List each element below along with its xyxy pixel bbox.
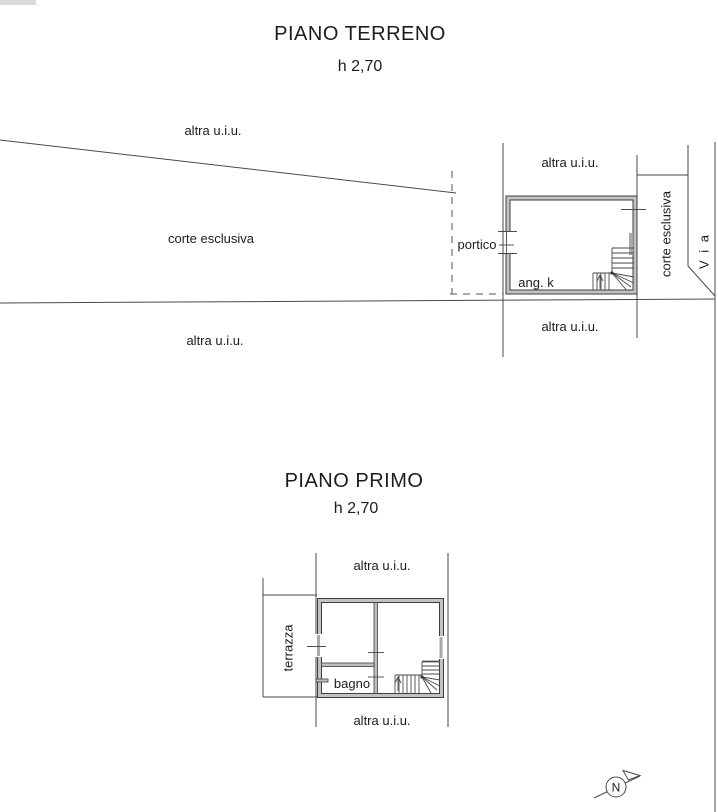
boundary-line-sloping <box>0 140 456 193</box>
room-ang-k: ang. k <box>498 196 646 294</box>
label-altra-uiu-bottom-left: altra u.i.u. <box>186 333 243 348</box>
label-altra-uiu-bottom-right: altra u.i.u. <box>541 319 598 334</box>
label-portico: portico <box>457 237 496 252</box>
scan-smudge <box>0 0 36 5</box>
first-floor-height-note: h 2,70 <box>334 500 379 517</box>
bagno-wall-top <box>322 663 375 667</box>
ground-floor-title: PIANO TERRENO <box>274 23 446 45</box>
label-corte-esclusiva-left: corte esclusiva <box>168 231 255 246</box>
ff-partition-vertical <box>374 603 378 694</box>
first-floor-title: PIANO PRIMO <box>285 470 424 492</box>
ff-left-window <box>317 635 320 656</box>
ff-right-window <box>440 637 443 658</box>
label-bagno: bagno <box>334 676 370 691</box>
label-ff-altra-uiu-top: altra u.i.u. <box>353 558 410 573</box>
label-via: V i a <box>697 233 712 269</box>
label-altra-uiu-top-right: altra u.i.u. <box>541 155 598 170</box>
first-floor-plan: PIANO PRIMO h 2,70 altra u.i.u. altra u.… <box>263 470 448 728</box>
floor-plan-drawing: PIANO TERRENO h 2,70 altra u.i.u. corte … <box>0 0 718 812</box>
label-corte-esclusiva-right: corte esclusiva <box>659 190 674 277</box>
first-floor-unit: bagno <box>307 599 445 698</box>
north-label: N <box>612 781 621 795</box>
north-arrow-head <box>623 771 640 781</box>
bagno-wall-stub <box>316 679 328 682</box>
door-opening-gap <box>504 232 512 253</box>
label-altra-uiu-top-left: altra u.i.u. <box>184 123 241 138</box>
street-diagonal-line <box>688 266 715 296</box>
floor-plan-page: PIANO TERRENO h 2,70 altra u.i.u. corte … <box>0 0 718 812</box>
label-ang-k: ang. k <box>518 275 554 290</box>
terrace: terrazza <box>263 578 318 697</box>
label-terrazza: terrazza <box>281 624 296 672</box>
label-ff-altra-uiu-bottom: altra u.i.u. <box>353 713 410 728</box>
stairs-ground-floor <box>593 248 634 290</box>
stairs-first-floor <box>395 662 440 694</box>
ff-stair-pivot-dot <box>420 675 423 678</box>
stair-pivot-dot <box>610 271 613 274</box>
north-arrow: N <box>594 771 640 799</box>
ground-floor-height-note: h 2,70 <box>338 58 383 75</box>
boundary-line-bottom <box>0 299 715 303</box>
window-right-wall <box>629 233 633 255</box>
